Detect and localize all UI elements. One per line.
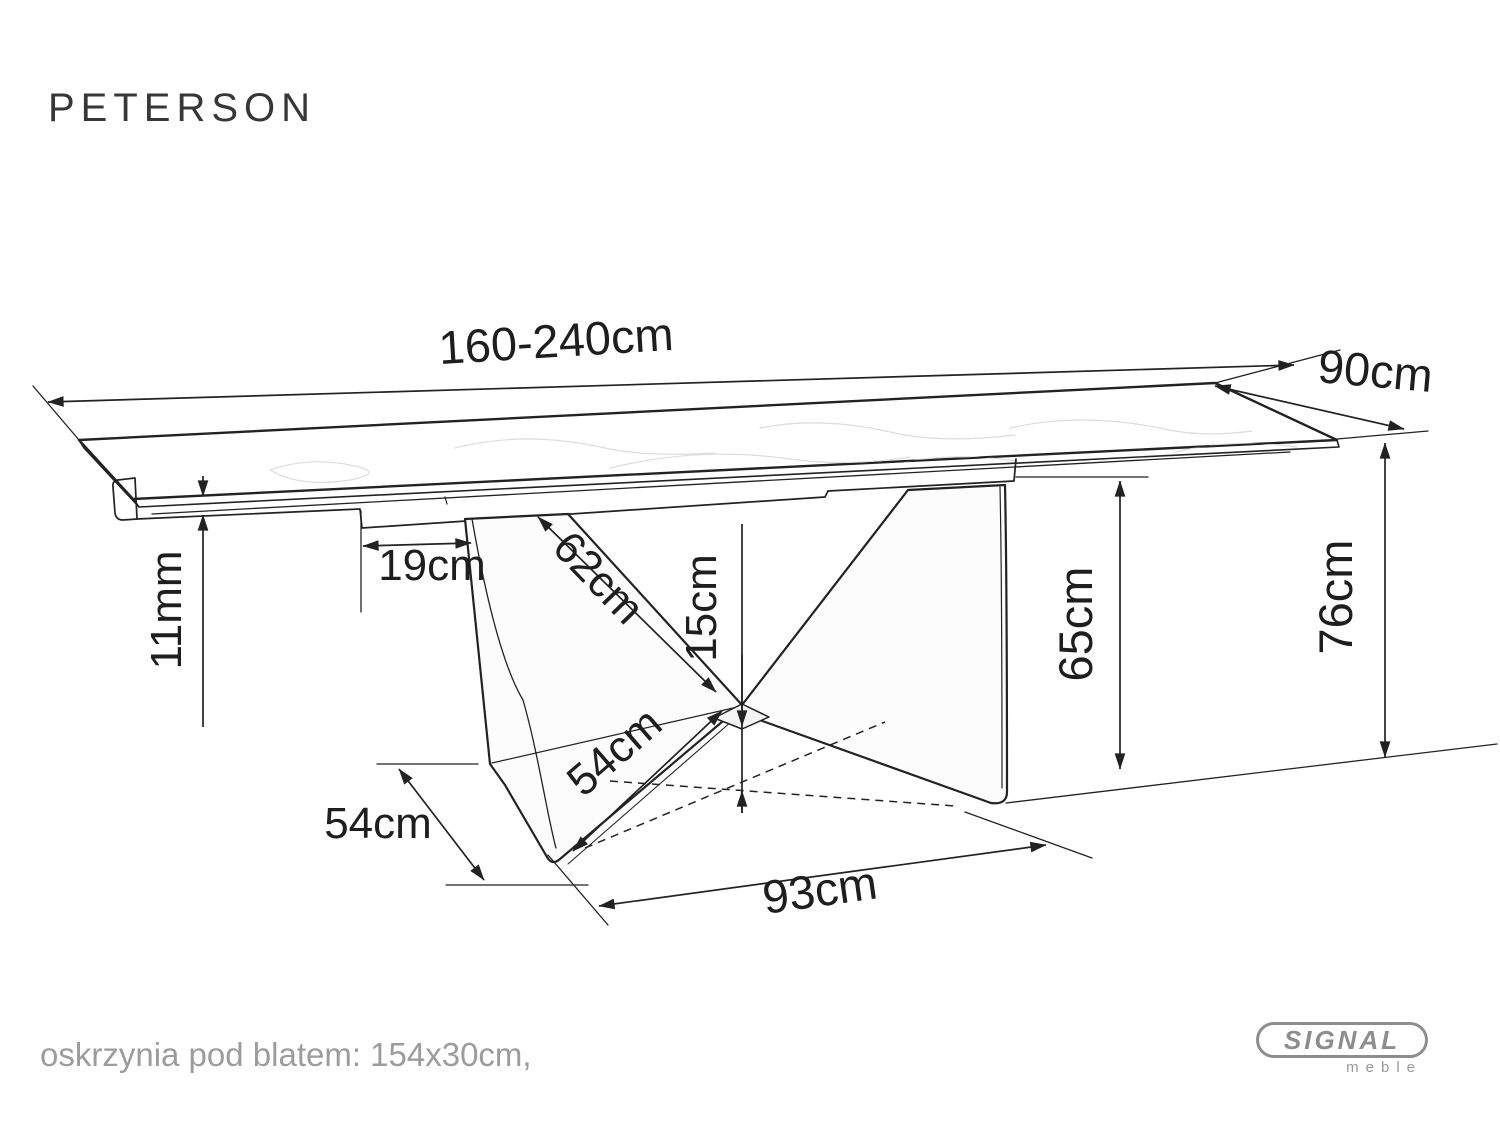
extension-line-right-foot [965, 812, 1092, 858]
dim-label-clearance: 15cm [677, 554, 726, 662]
footer-note: oskrzynia pod blatem: 154x30cm, [40, 1036, 532, 1074]
dim-label-base-depth: 54cm [324, 799, 432, 848]
extension-line-left-foot [548, 855, 608, 925]
dim-label-width: 90cm [1316, 339, 1435, 402]
logo-badge: SIGNAL [1256, 1022, 1428, 1058]
logo-brand-text: SIGNAL [1284, 1025, 1400, 1056]
table-top-surface [79, 383, 1337, 499]
extension-line-length-left [33, 386, 79, 440]
technical-drawing: 160-240cm 90cm 76cm 65cm 11mm 19cm 62cm … [0, 0, 1500, 1148]
dim-label-table-height: 76cm [1309, 540, 1362, 655]
hidden-floor-diagonal-2 [610, 781, 955, 806]
drawing-page: 160-240cm 90cm 76cm 65cm 11mm 19cm 62cm … [0, 0, 1500, 1148]
floor-line-right [1006, 744, 1497, 803]
page-title: PETERSON [48, 86, 316, 131]
base-right-panel [742, 485, 1007, 803]
brand-logo: SIGNAL meble [1256, 1022, 1428, 1076]
logo-sub-text: meble [1256, 1059, 1428, 1076]
extension-line-top-edge [1337, 431, 1428, 439]
dim-label-top-thickness: 11mm [142, 551, 191, 670]
base-group [465, 485, 1007, 864]
table-top-group [79, 383, 1339, 528]
dim-label-length: 160-240cm [437, 307, 675, 374]
dim-label-base-length: 93cm [759, 855, 880, 923]
dim-label-apron-inset: 19cm [378, 541, 486, 590]
dim-label-apron-height: 65cm [1049, 567, 1102, 682]
